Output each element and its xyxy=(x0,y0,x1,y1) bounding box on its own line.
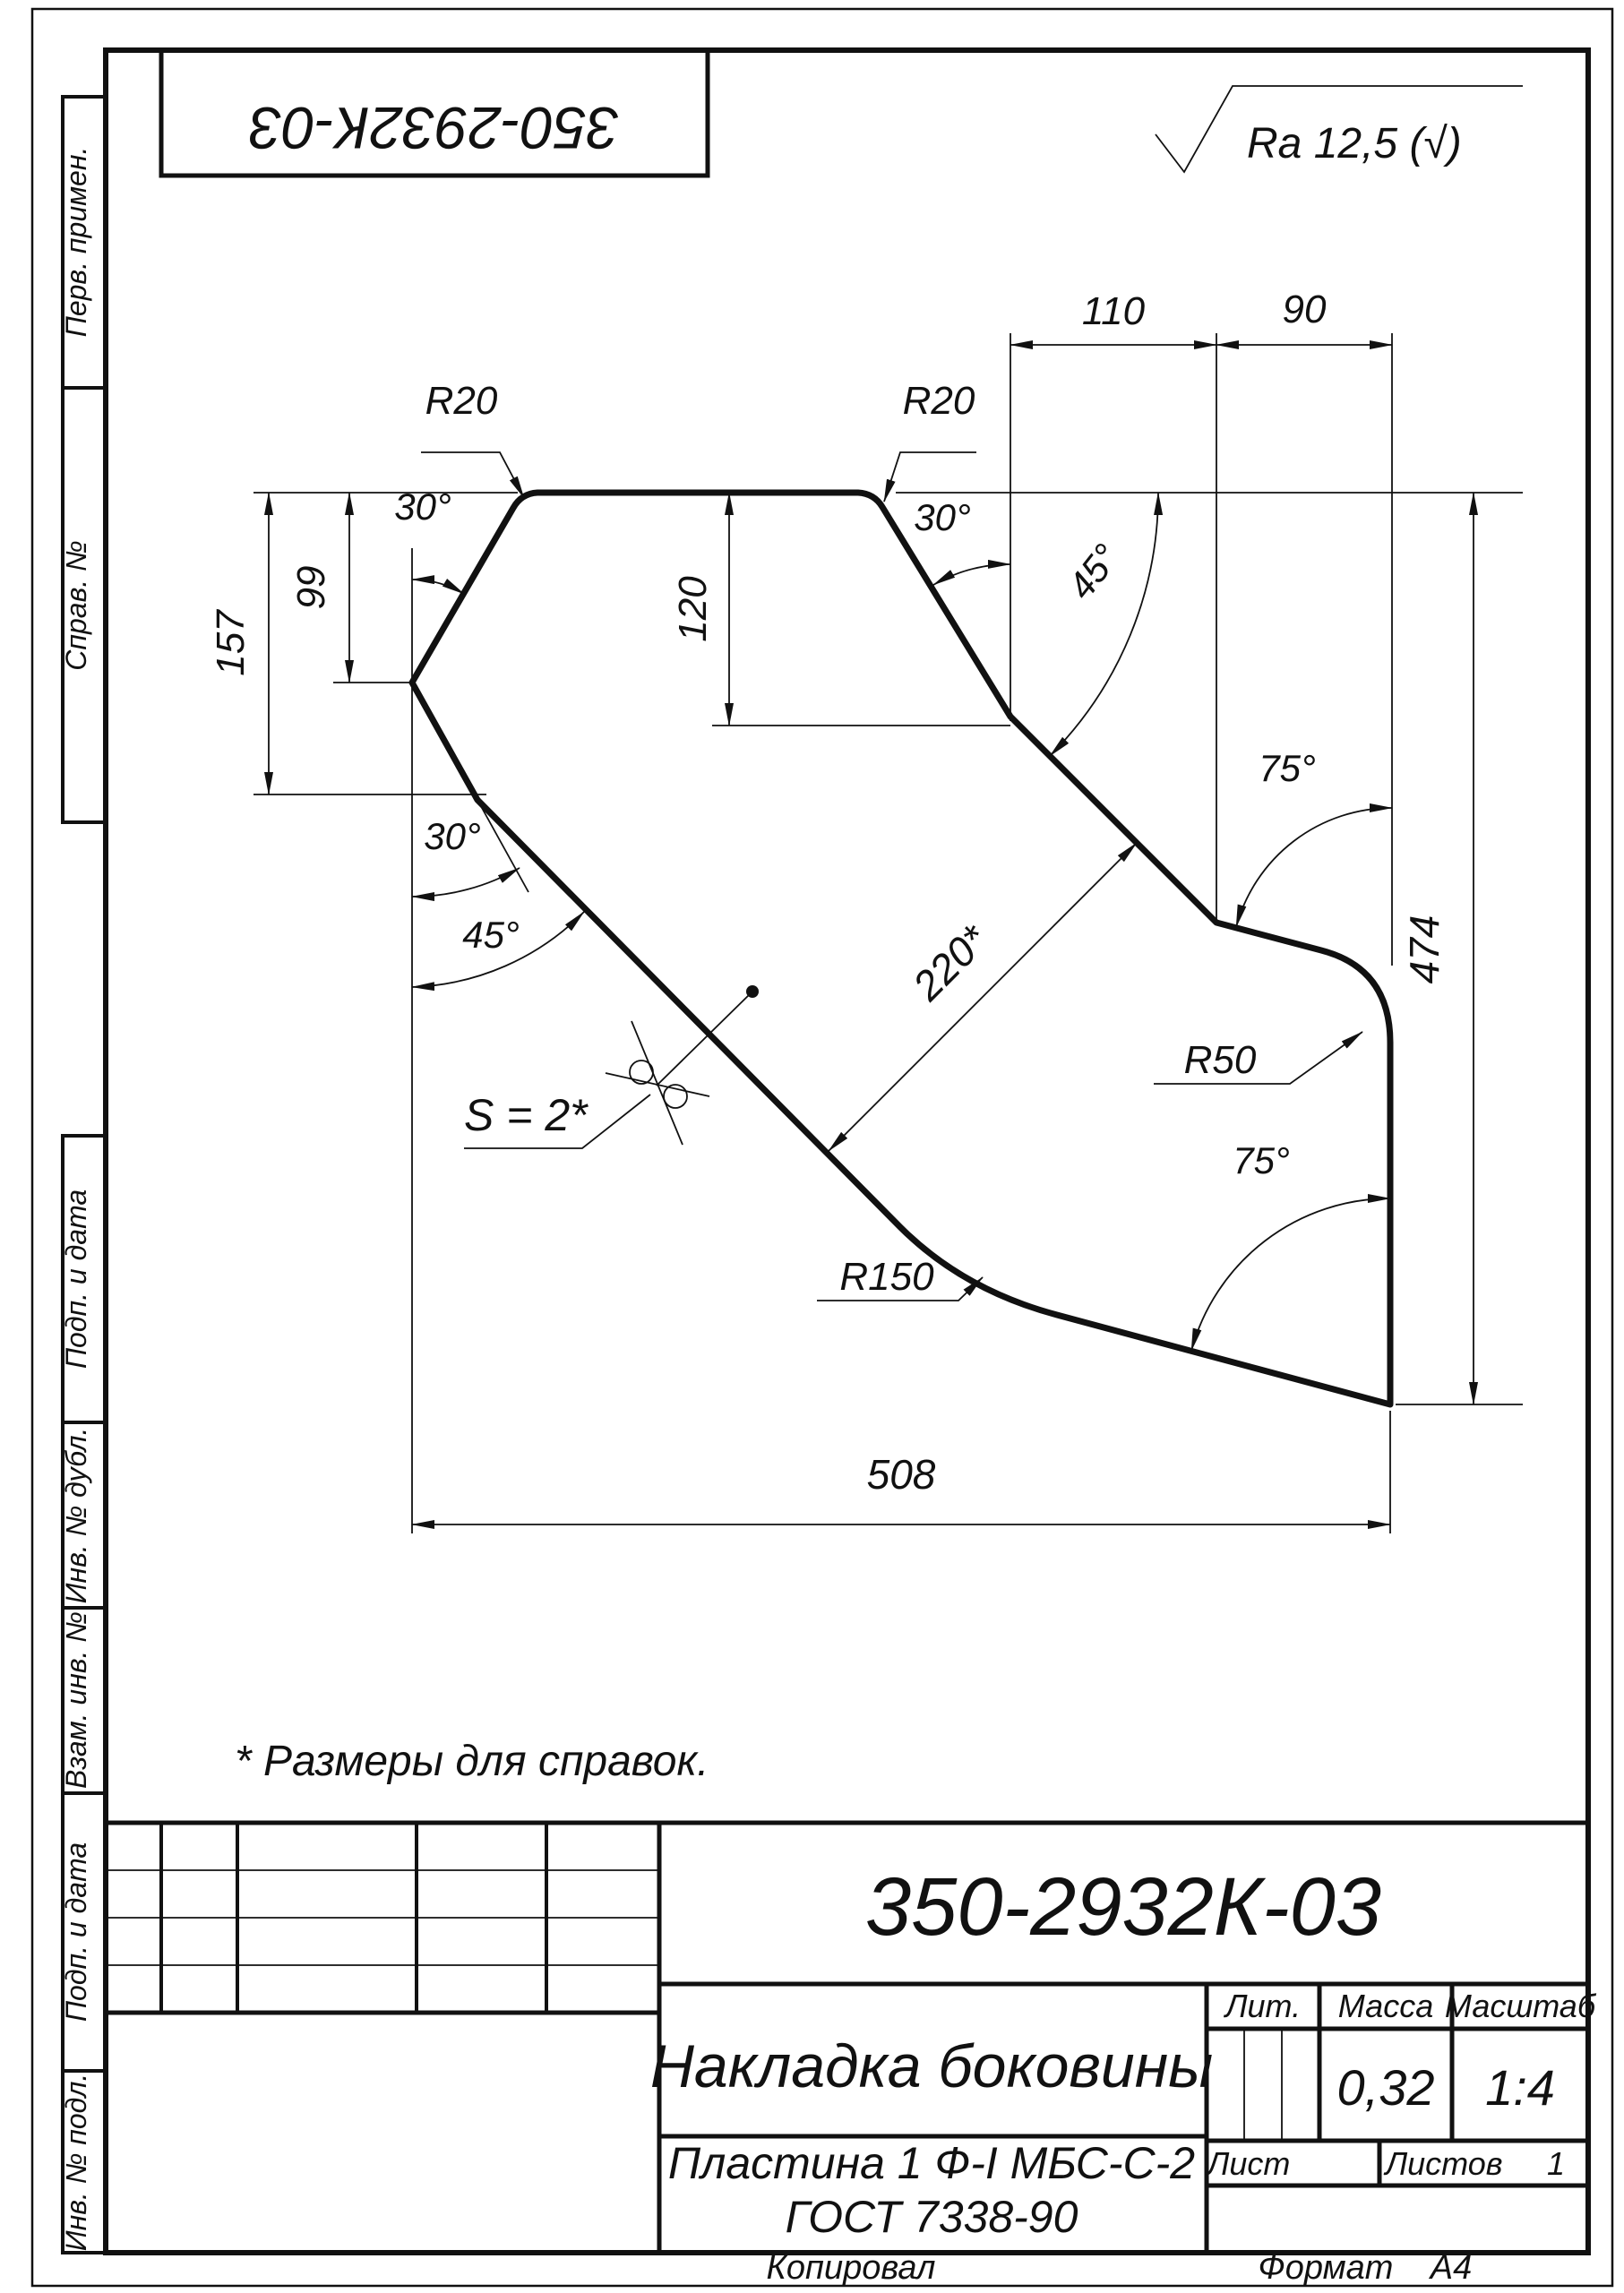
dim-text-157: 157 xyxy=(209,609,253,676)
sheets-value: 1 xyxy=(1547,2145,1565,2182)
drawing-sheet: 350-2932К-03 Перв. примен. Справ. № Подп… xyxy=(0,0,1624,2293)
margin-label: Перв. примен. xyxy=(60,147,92,338)
sheet-label: Лист xyxy=(1206,2145,1291,2182)
reference-note: * Размеры для справок. xyxy=(235,1738,709,1785)
margin-label: Подп. и дата xyxy=(60,1842,92,2022)
angle-text-45-upper-right: 45° xyxy=(1060,537,1128,607)
angle-text-30-lower-left: 30° xyxy=(424,815,481,857)
arc-30-top-left xyxy=(412,580,464,594)
title-block: 350-2932К-03 Накладка боковины Пластина … xyxy=(106,1823,1597,2253)
cut-symbol xyxy=(606,1021,709,1145)
format-value: А4 xyxy=(1429,2249,1472,2287)
dim-text-r50: R50 xyxy=(1184,1038,1257,1082)
dim-text-r150: R150 xyxy=(839,1255,934,1299)
format-label: Формат xyxy=(1259,2249,1394,2287)
material-line2: ГОСТ 7338-90 xyxy=(786,2192,1078,2242)
leader-r20-right xyxy=(884,452,976,502)
material-line1: Пластина 1 Ф-I МБС-С-2 xyxy=(668,2138,1195,2188)
thickness-text: S = 2* xyxy=(464,1090,589,1140)
leader-dot xyxy=(657,992,752,1086)
arc-75-top xyxy=(1236,808,1392,927)
margin-label: Подп. и дата xyxy=(60,1189,92,1369)
gost-drawing: 350-2932К-03 Перв. примен. Справ. № Подп… xyxy=(0,0,1624,2293)
mass-label: Масса xyxy=(1338,1988,1433,2024)
angle-text-75-top: 75° xyxy=(1259,747,1316,789)
dim-text-120: 120 xyxy=(671,576,715,642)
scale-value: 1:4 xyxy=(1485,2059,1555,2116)
arc-30-lower-left xyxy=(412,868,520,897)
dim-text-99: 99 xyxy=(289,566,333,610)
arc-45-upper-right xyxy=(1050,493,1158,756)
designation: 350-2932К-03 xyxy=(865,1861,1381,1953)
sheets-label: Листов xyxy=(1383,2145,1502,2182)
margin-label: Инв. № дубл. xyxy=(60,1428,92,1604)
roughness-text: Ra 12,5 (√) xyxy=(1247,120,1462,167)
margin-label: Инв. № подл. xyxy=(60,2074,92,2252)
top-stamp-text: 350-2932К-03 xyxy=(249,95,620,161)
dim-text-r20-left: R20 xyxy=(425,379,498,423)
arc-30-top-right xyxy=(933,564,1010,585)
dim-text-474: 474 xyxy=(1401,915,1448,984)
left-margin-column: Перв. примен. Справ. № Подп. и дата Инв.… xyxy=(60,97,106,2253)
mass-value: 0,32 xyxy=(1337,2059,1435,2116)
part-name: Накладка боковины xyxy=(650,2032,1213,2100)
leader-dot-end xyxy=(746,985,759,998)
angle-text-30-top-right: 30° xyxy=(914,496,971,538)
scale-label: Масштаб xyxy=(1445,1988,1597,2024)
angle-text-75-bottom: 75° xyxy=(1233,1139,1290,1181)
dim-text-r20-right: R20 xyxy=(903,379,975,423)
angle-text-30-top-left: 30° xyxy=(394,485,451,528)
dim-text-110: 110 xyxy=(1082,289,1146,333)
dimension-texts: 110 90 R20 R20 30° 30° 120 99 157 30° 45… xyxy=(209,288,1448,1498)
dim-220 xyxy=(829,843,1137,1151)
roughness-mark: Ra 12,5 (√) xyxy=(1156,86,1523,172)
angle-arcs xyxy=(412,493,1392,1351)
margin-label: Справ. № xyxy=(60,540,92,670)
lit-label: Лит. xyxy=(1224,1988,1301,2024)
margin-label: Взам. инв. № xyxy=(60,1611,92,1789)
arc-75-bottom xyxy=(1191,1198,1390,1351)
dim-text-508: 508 xyxy=(867,1451,936,1498)
dim-text-90: 90 xyxy=(1283,288,1327,331)
top-stamp: 350-2932К-03 xyxy=(161,50,708,176)
angle-text-45-lower-left: 45° xyxy=(462,914,520,956)
leader-lines xyxy=(421,452,1362,1301)
copied-label: Копировал xyxy=(767,2249,936,2287)
